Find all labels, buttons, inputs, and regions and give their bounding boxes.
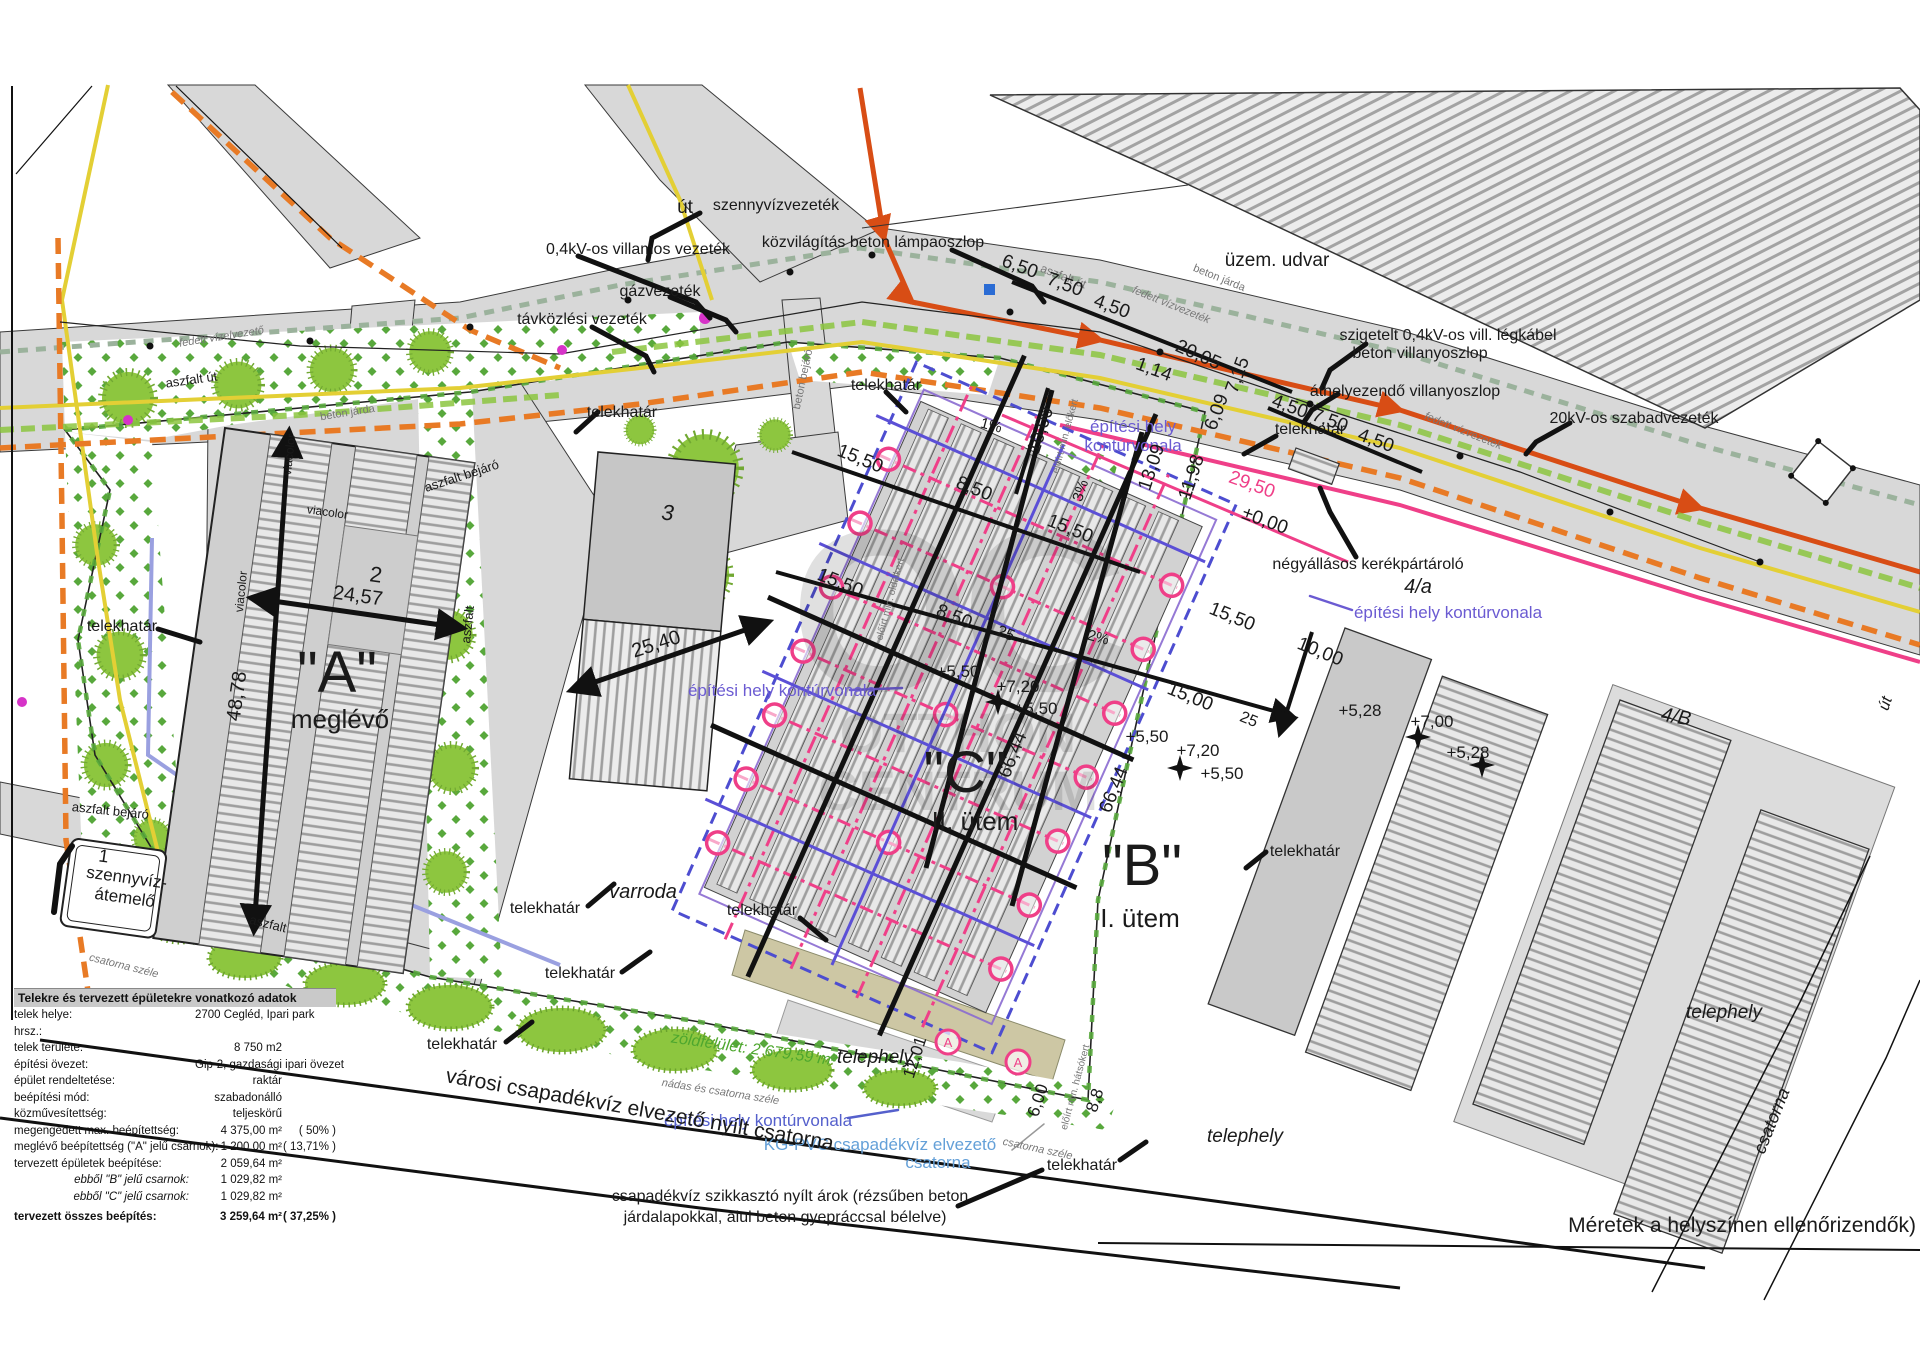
row-pct: [282, 1073, 336, 1090]
building-a-sub: meglévő: [291, 704, 389, 734]
dim: 25: [1237, 709, 1260, 731]
row-label: tervezett épületek beépítése:: [14, 1156, 195, 1173]
label-telekhatar: telekhatár: [727, 902, 798, 919]
label-gazvezetek: gázvezeték: [620, 283, 702, 300]
label-telephely: telephely: [1686, 1002, 1764, 1023]
row-pct: [282, 1172, 336, 1189]
label-telekhatar: telekhatár: [87, 618, 158, 635]
label-epitesi-hely-1: építési hely: [1090, 417, 1176, 436]
building-c-sub: II. ütem: [932, 806, 1019, 836]
label-ut: út: [677, 197, 694, 218]
label-kozvilagitas: közvilágítás beton lámpaoszlop: [762, 234, 984, 251]
dim: +7,20: [996, 677, 1039, 696]
label-telephely: telephely: [1207, 1126, 1285, 1147]
label-telekhatar: telekhatár: [851, 377, 922, 394]
row-value: 1 029,82 m²: [195, 1189, 282, 1206]
label-kgpvc-2: csatorna: [905, 1153, 971, 1172]
label-csatorna-szele: csatorna széle: [1002, 1136, 1074, 1162]
label-telekhatar: telekhatár: [427, 1036, 498, 1053]
row-pct: ( 50% ): [282, 1123, 336, 1140]
dim: 15,50: [1206, 598, 1258, 635]
label-athelyezendo: áthelyezendő villanyoszlop: [1310, 383, 1500, 400]
row-value: 1 200,00 m²: [195, 1139, 282, 1156]
label-epitesi-hely: építési hely kontúrvonala: [1354, 603, 1543, 622]
row-label: telek területe:: [14, 1040, 195, 1057]
building-a-label: "A": [297, 640, 377, 705]
label-telekhatar: telekhatár: [1047, 1157, 1118, 1174]
label-szikkaszto-2: járdalapokkal, alul beton gyepráccsal bé…: [623, 1209, 947, 1226]
building-4a-label: 4/a: [1404, 576, 1432, 598]
row-pct: [282, 1090, 336, 1107]
label-telekhatar: telekhatár: [587, 404, 658, 421]
label-tavkozlesi: távközlési vezeték: [517, 311, 648, 328]
row-value: Gip-2, gazdasági ipari övezet: [195, 1057, 282, 1074]
row-value: 8 750 m2: [195, 1040, 282, 1057]
dim: +5,28: [1446, 743, 1489, 762]
hydrant-symbol: [984, 284, 995, 295]
table-row: telek helye:2700 Cegléd, Ipari park: [14, 1007, 336, 1024]
frame-bottom: [1098, 1243, 1920, 1250]
table-row-total: tervezett összes beépítés:3 259,64 m²( 3…: [14, 1209, 336, 1226]
row-value: [195, 1024, 282, 1041]
dim: +5,28: [1338, 701, 1381, 720]
row-label: ebből "B" jelű csarnok:: [14, 1172, 195, 1189]
row-pct: [282, 1024, 336, 1041]
label-uzem-udvar: üzem. udvar: [1225, 250, 1330, 271]
row-value: 2700 Cegléd, Ipari park: [195, 1007, 282, 1024]
row-label: beépítési mód:: [14, 1090, 195, 1107]
row-value: szabadonálló: [195, 1090, 282, 1107]
table-row: hrsz.:: [14, 1024, 336, 1041]
marker-letter: A: [944, 1035, 953, 1050]
dim: +5,50: [1125, 727, 1168, 746]
dim: +5,50: [936, 662, 979, 681]
dim: 29,50: [1226, 467, 1278, 503]
row-pct: [282, 1189, 336, 1206]
row-label: hrsz.:: [14, 1024, 195, 1041]
row-value: 2 059,64 m²: [195, 1156, 282, 1173]
label-epitesi-hely: építési hely kontúrvonala: [688, 681, 877, 700]
row-label: ebből "C" jelű csarnok:: [14, 1189, 195, 1206]
row-pct: ( 13,71% ): [282, 1139, 336, 1156]
dim: +7,20: [1176, 741, 1219, 760]
dim: +5,50: [1200, 764, 1243, 783]
label-szigetelt-1: szigetelt 0,4kV-os vill. légkábel: [1340, 327, 1557, 344]
label-villamos: 0,4kV-os villamos vezeték: [546, 241, 731, 258]
label-szikkaszto-1: csapadékvíz szikkasztó nyílt árok (rézsű…: [612, 1188, 969, 1205]
table-row: ebből "C" jelű csarnok:1 029,82 m²: [14, 1189, 336, 1206]
label-ut-right: út: [1876, 694, 1896, 712]
label-csatorna-szele: csatorna széle: [88, 952, 160, 981]
label-szabadvezetek: 20kV-os szabadvezeték: [1550, 410, 1720, 427]
row-value: 4 375,00 m²: [195, 1123, 282, 1140]
label-negyallasos: négyállásos kerékpártároló: [1272, 556, 1463, 573]
dim: +7,00: [1410, 712, 1453, 731]
row-label: telek helye:: [14, 1007, 195, 1024]
table-row: megengedett max. beépítettség:4 375,00 m…: [14, 1123, 336, 1140]
label-telekhatar: telekhatár: [545, 965, 616, 982]
table-row: meglévő beépítettség ("A" jelű csarnok):…: [14, 1139, 336, 1156]
row-label: meglévő beépítettség ("A" jelű csarnok):: [14, 1139, 195, 1156]
row-value: teljeskörű: [195, 1106, 282, 1123]
building-3: [569, 452, 735, 791]
label-telekhatar: telekhatár: [510, 900, 581, 917]
table-row: ebből "B" jelű csarnok:1 029,82 m²: [14, 1172, 336, 1189]
table-row: épület rendeltetése:raktár: [14, 1073, 336, 1090]
row-value: raktár: [195, 1073, 282, 1090]
row-label: építési övezet:: [14, 1057, 195, 1074]
marker-letter: A: [1014, 1055, 1023, 1070]
table-title: Telekre és tervezett épületekre vonatkoz…: [14, 988, 336, 1007]
table-row: tervezett épületek beépítése:2 059,64 m²: [14, 1156, 336, 1173]
row-value: 1 029,82 m²: [195, 1172, 282, 1189]
row-value: 3 259,64 m²: [195, 1209, 282, 1226]
row-pct: [282, 1106, 336, 1123]
table-row: közművesítettség:teljeskörű: [14, 1106, 336, 1123]
label-szennyvizvezetek: szennyvízvezeték: [713, 197, 840, 214]
table-row: építési övezet:Gip-2, gazdasági ipari öv…: [14, 1057, 336, 1074]
row-pct: ( 37,25% ): [282, 1209, 336, 1226]
building-b-sub: I. ütem: [1100, 903, 1179, 933]
dim: 15,00: [1164, 678, 1216, 715]
row-label: megengedett max. beépítettség:: [14, 1123, 195, 1140]
dim: 11,98: [1175, 452, 1209, 502]
label-szigetelt-2: beton villanyoszlop: [1352, 345, 1487, 362]
dim: ±0,00: [1239, 503, 1291, 539]
row-label: épület rendeltetése:: [14, 1073, 195, 1090]
building-b-label: "B": [1102, 833, 1182, 898]
table-row: telek területe:8 750 m2: [14, 1040, 336, 1057]
row-label: közművesítettség:: [14, 1106, 195, 1123]
row-pct: [282, 1007, 336, 1024]
row-pct: [282, 1057, 336, 1074]
label-meretek: Méretek a helyszínen ellenőrizendők): [1568, 1214, 1916, 1237]
dim: +5,50: [1014, 699, 1057, 718]
label-varroda: varroda: [609, 881, 677, 903]
label-telekhatar: telekhatár: [1270, 843, 1341, 860]
site-data-table: Telekre és tervezett épületekre vonatkoz…: [14, 988, 336, 1226]
row-pct: [282, 1156, 336, 1173]
row-pct: [282, 1040, 336, 1057]
site-plan-page: { "colors": { "accent_pink": "#ef3f88", …: [0, 0, 1920, 1356]
row-label: tervezett összes beépítés:: [14, 1209, 195, 1226]
dim: 66,44: [1095, 764, 1132, 816]
table-row: beépítési mód:szabadonálló: [14, 1090, 336, 1107]
